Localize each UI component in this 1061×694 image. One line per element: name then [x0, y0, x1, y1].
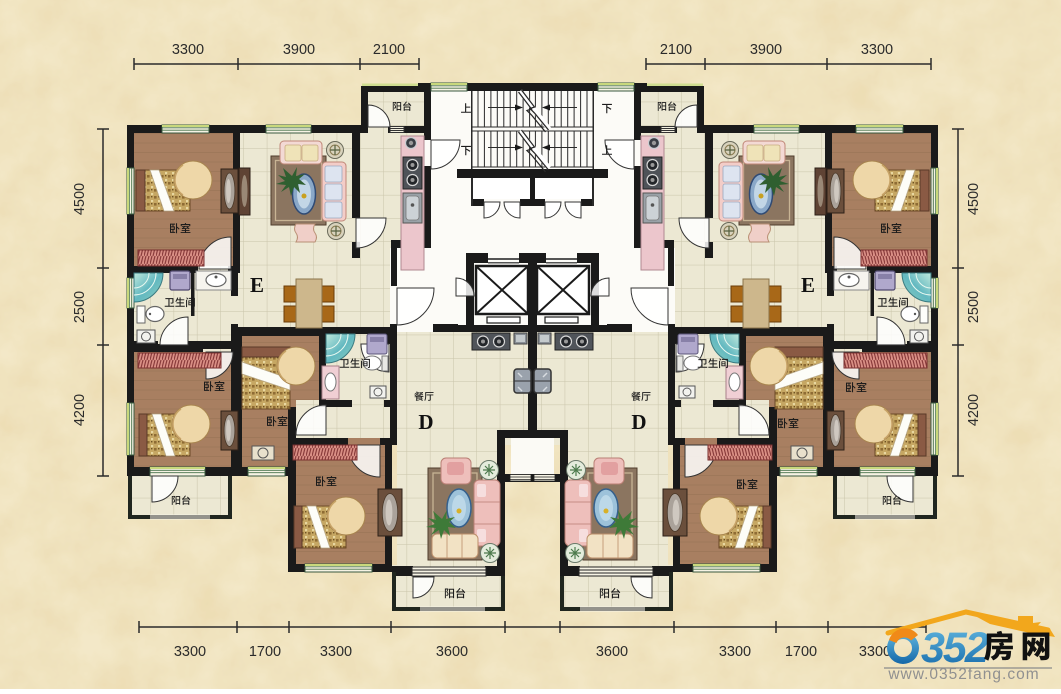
svg-text:3300: 3300	[859, 644, 891, 660]
svg-text:4500: 4500	[72, 183, 88, 215]
svg-text:4200: 4200	[966, 394, 982, 426]
svg-text:4500: 4500	[966, 183, 982, 215]
svg-text:3600: 3600	[596, 644, 628, 660]
svg-text:2100: 2100	[373, 42, 405, 58]
svg-text:2500: 2500	[966, 291, 982, 323]
svg-text:D: D	[418, 410, 433, 434]
svg-text:2100: 2100	[660, 42, 692, 58]
svg-text:E: E	[801, 273, 815, 297]
svg-text:3900: 3900	[283, 42, 315, 58]
svg-text:www.0352fang.com: www.0352fang.com	[887, 666, 1039, 683]
svg-text:1700: 1700	[785, 644, 817, 660]
svg-text:3900: 3900	[750, 42, 782, 58]
svg-text:1700: 1700	[249, 644, 281, 660]
svg-text:3600: 3600	[436, 644, 468, 660]
svg-text:3300: 3300	[719, 644, 751, 660]
svg-text:E: E	[250, 273, 264, 297]
svg-text:2500: 2500	[72, 291, 88, 323]
svg-text:3300: 3300	[320, 644, 352, 660]
svg-text:D: D	[631, 410, 646, 434]
svg-text:352: 352	[921, 624, 989, 672]
svg-text:4200: 4200	[72, 394, 88, 426]
svg-text:3300: 3300	[172, 42, 204, 58]
svg-text:3300: 3300	[861, 42, 893, 58]
svg-text:3300: 3300	[174, 644, 206, 660]
